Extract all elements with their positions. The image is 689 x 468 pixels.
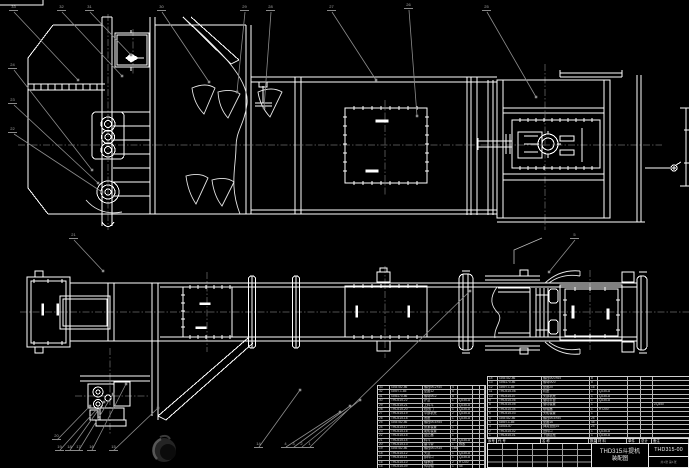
title-cell: THD315斗提机 装配图: [592, 444, 649, 467]
bom-table-right: 14GB5782-86螺栓M20×65813GB6170-86螺母M20812G…: [487, 376, 689, 439]
balloon-number: 21: [69, 233, 78, 239]
balloon-number: 16: [87, 445, 96, 451]
product-title: THD315斗提机: [600, 449, 640, 456]
balloon-number: 25: [482, 5, 491, 11]
watermark-blob: [152, 436, 176, 462]
balloon-number: 18: [65, 445, 74, 451]
balloon-number: 5: [570, 233, 579, 239]
balloon-number: 30: [157, 5, 166, 11]
upper-view: [28, 17, 689, 227]
balloon-number: 31: [85, 5, 94, 11]
balloon-number: 20: [52, 434, 61, 440]
balloon-number: 22: [8, 127, 17, 133]
balloon-number: 27: [327, 5, 336, 11]
balloon-number: 1: [305, 442, 314, 448]
drawing-number: THD315-00: [649, 444, 688, 457]
balloon-number: 23: [8, 98, 17, 104]
balloon-number: 29: [240, 5, 249, 11]
cad-canvas[interactable]: 3332313029282726252423222152019181716151…: [0, 0, 689, 468]
title-block: THD315斗提机 装配图 THD315-00 共1张 第1张: [487, 443, 689, 468]
kinked-leader: [514, 238, 542, 264]
sheet-frame-corner: [0, 0, 43, 5]
balloon-number: 19: [55, 445, 64, 451]
balloon-number: 17: [74, 445, 83, 451]
number-cell: THD315-00 共1张 第1张: [649, 444, 688, 467]
leader-dots: [78, 55, 549, 412]
balloon-number: 32: [57, 5, 66, 11]
balloon-number: 33: [9, 5, 18, 11]
bom-table-left: 33GB5782-86螺栓M12×40432GB97.1-85垫圈12831GB…: [377, 385, 486, 468]
revision-grid: [488, 444, 592, 467]
balloon-number: 14: [254, 442, 263, 448]
balloon-number: 24: [8, 63, 17, 69]
balloon-number: 15: [109, 445, 118, 451]
sheet-note: 共1张 第1张: [649, 457, 688, 467]
balloon-number: 28: [266, 5, 275, 11]
balloon-number: 26: [404, 3, 413, 9]
sheet-title: 装配图: [612, 456, 629, 462]
